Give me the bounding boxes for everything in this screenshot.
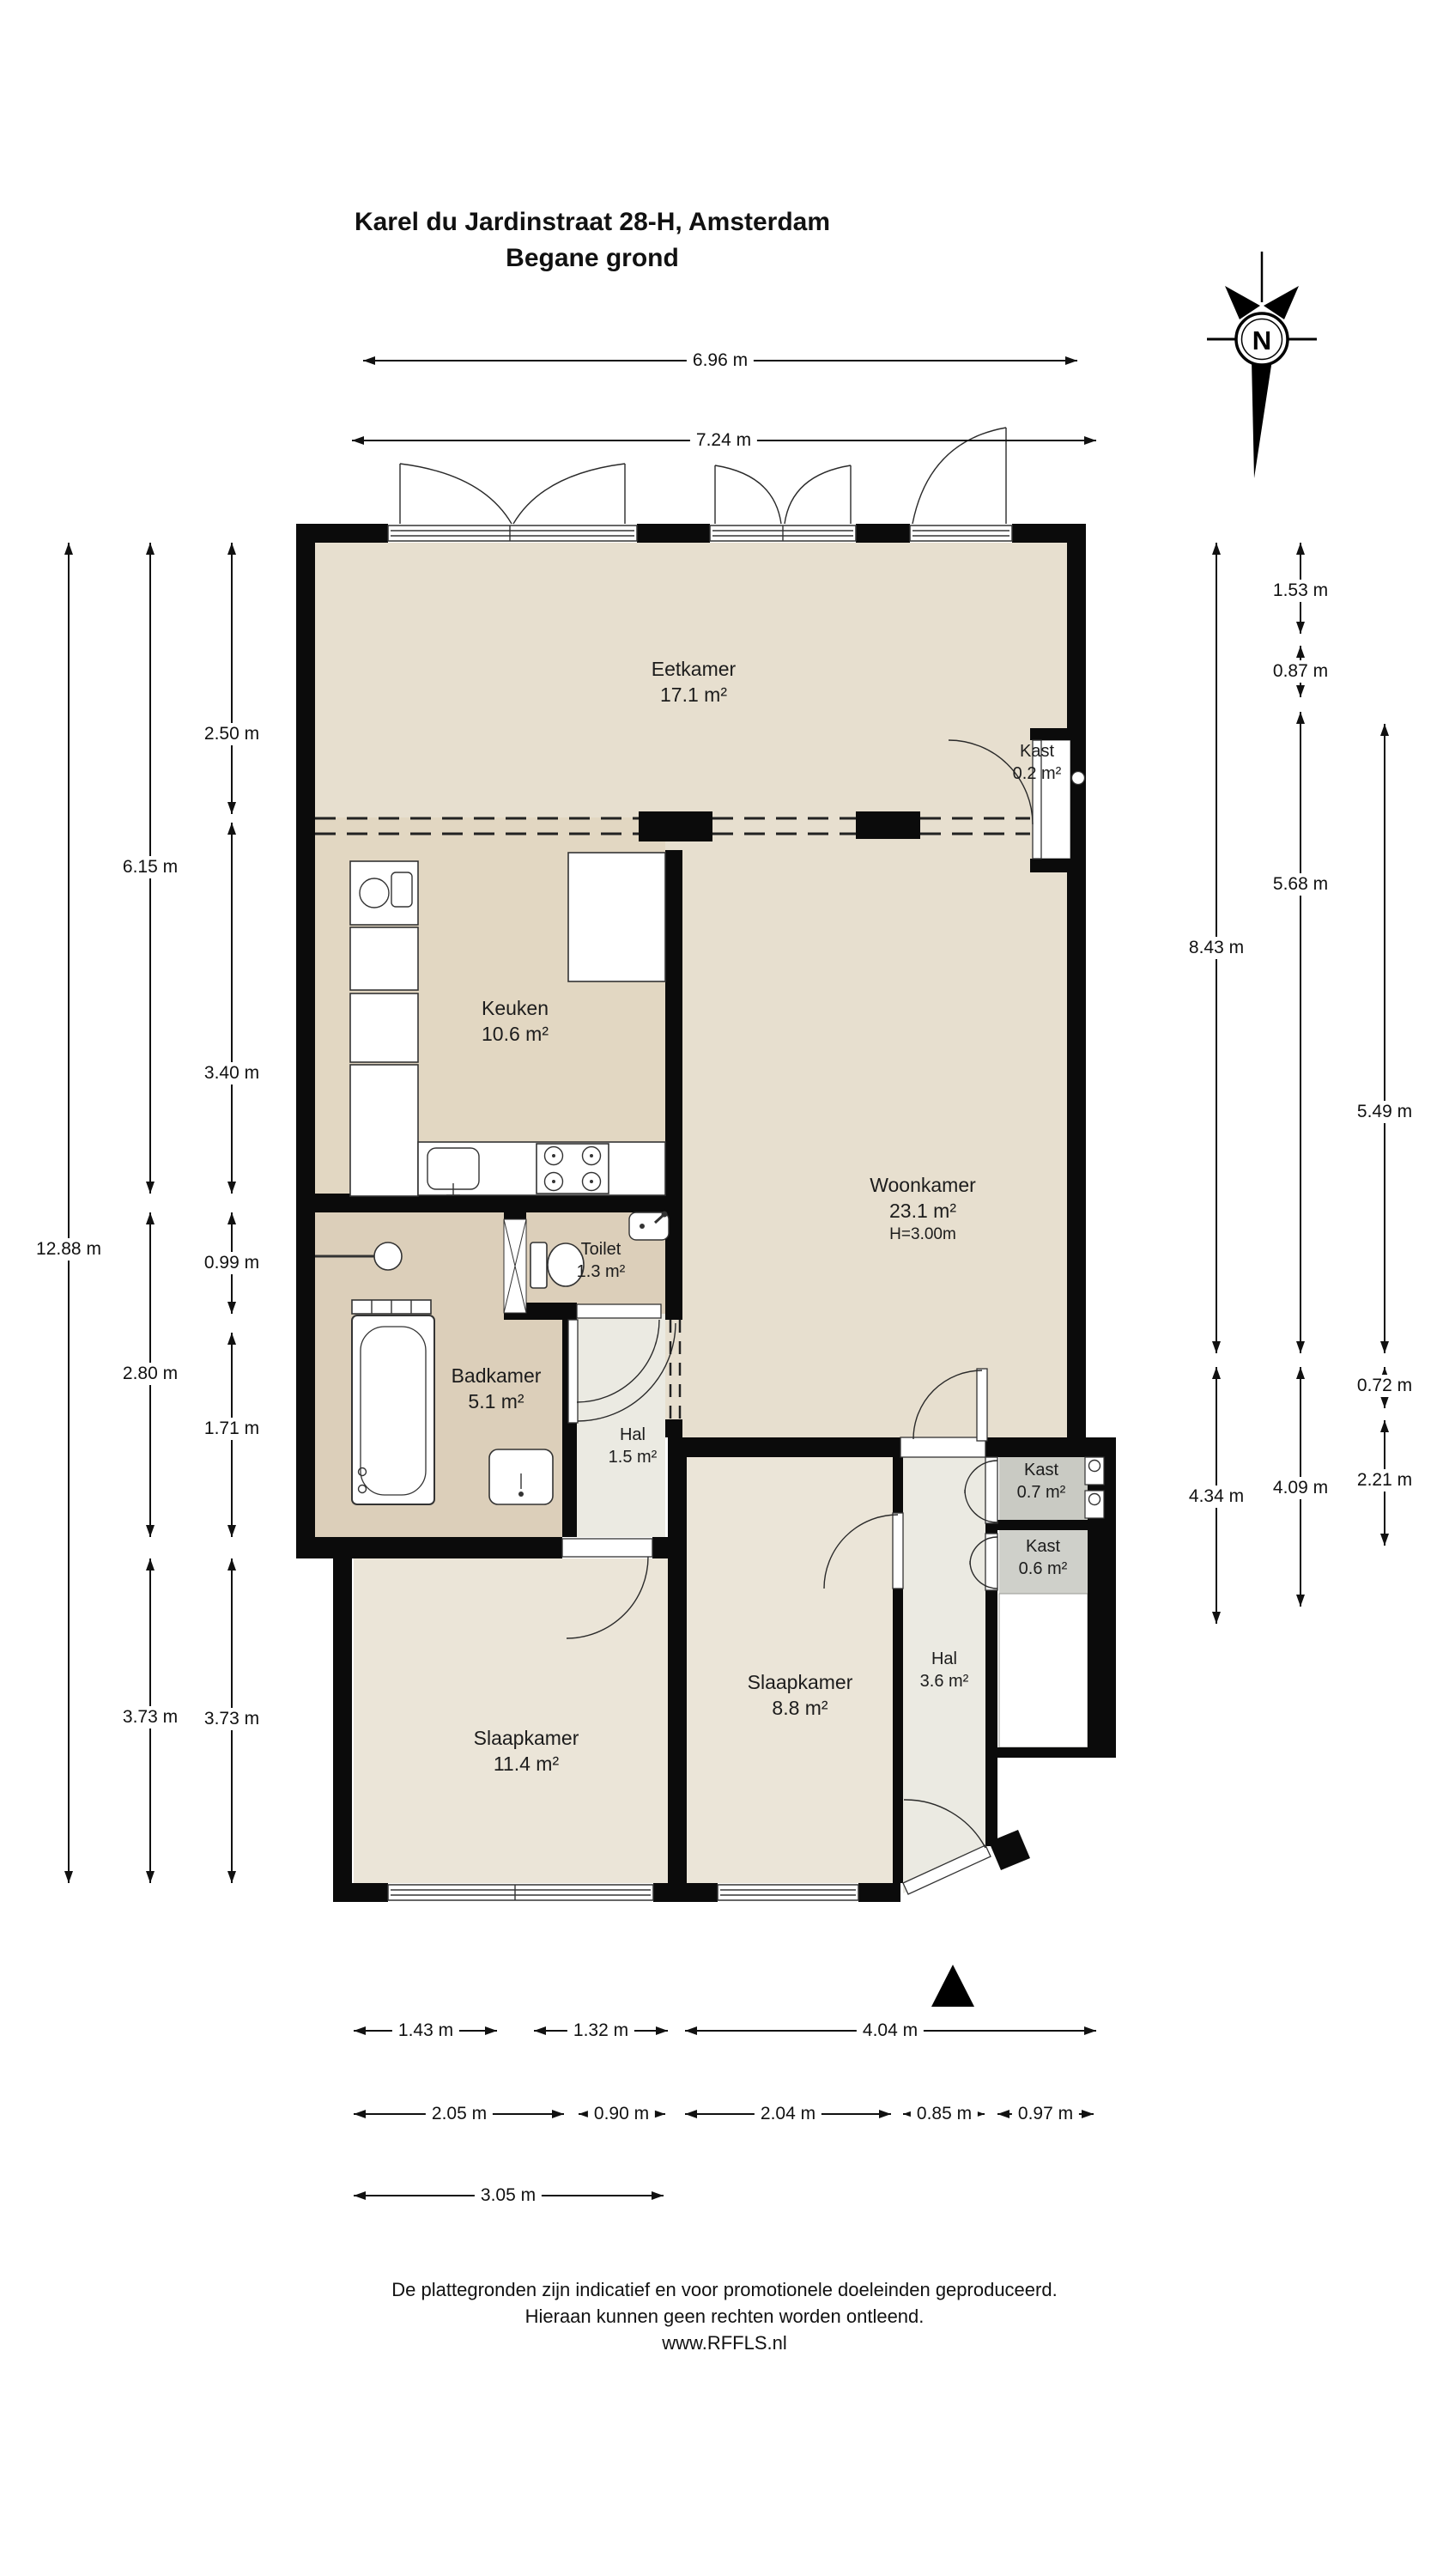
floorplan-page: Karel du Jardinstraat 28-H, Amsterdam Be… [0, 0, 1449, 2576]
dim-left-373a: 3.73 m [117, 1706, 184, 1728]
room-label-woonkamer: Woonkamer 23.1 m² H=3.00m [870, 1173, 976, 1245]
dim-bottom-204: 2.04 m [755, 2103, 822, 2125]
dim-left-099: 0.99 m [198, 1252, 265, 1274]
room-label-kast-06: Kast 0.6 m² [1019, 1535, 1068, 1580]
dim-bottom-143: 1.43 m [392, 2020, 459, 2042]
dim-right-568: 5.68 m [1267, 873, 1334, 896]
disclaimer-line1: De plattegronden zijn indicatief en voor… [391, 2277, 1057, 2304]
duct-shaft [504, 1219, 526, 1313]
room-label-keuken: Keuken 10.6 m² [482, 996, 549, 1048]
dim-right-153: 1.53 m [1267, 580, 1334, 602]
room-label-eetkamer: Eetkamer 17.1 m² [652, 657, 736, 708]
floorplan-drawing: N [0, 0, 1449, 2576]
room-label-hal-klein: Hal 1.5 m² [609, 1424, 658, 1468]
bathtub-icon [352, 1315, 434, 1504]
boiler-icon [1072, 772, 1085, 785]
dim-right-843: 8.43 m [1183, 937, 1250, 959]
dim-left-280: 2.80 m [117, 1363, 184, 1385]
washbasin-icon [489, 1449, 553, 1504]
dim-left-340: 3.40 m [198, 1062, 265, 1084]
dim-left-171: 1.71 m [198, 1418, 265, 1440]
disclaimer-url: www.RFFLS.nl [391, 2330, 1057, 2357]
dim-bottom-085: 0.85 m [911, 2103, 978, 2125]
washing-machine-icon [350, 861, 418, 925]
dim-left-1288: 12.88 m [30, 1238, 107, 1261]
room-label-hal-entree: Hal 3.6 m² [920, 1648, 969, 1692]
entrance-marker-icon [931, 1965, 974, 2007]
dim-right-409: 4.09 m [1267, 1477, 1334, 1499]
room-label-kast-07: Kast 0.7 m² [1017, 1459, 1066, 1504]
dim-right-087: 0.87 m [1267, 660, 1334, 683]
dim-bottom-132: 1.32 m [567, 2020, 634, 2042]
dim-right-221: 2.21 m [1351, 1469, 1418, 1492]
dim-bottom-090: 0.90 m [588, 2103, 655, 2125]
room-label-toilet: Toilet 1.3 m² [577, 1238, 626, 1283]
compass-north-letter: N [1252, 325, 1271, 355]
compass-icon: N [1207, 252, 1317, 478]
dim-bottom-305: 3.05 m [475, 2184, 542, 2207]
dim-bottom-205: 2.05 m [426, 2103, 493, 2125]
disclaimer: De plattegronden zijn indicatief en voor… [391, 2277, 1057, 2356]
dim-bottom-097: 0.97 m [1012, 2103, 1079, 2125]
dim-right-434: 4.34 m [1183, 1485, 1250, 1508]
corner-sink-icon [629, 1212, 669, 1241]
room-label-slaapkamer-klein: Slaapkamer 8.8 m² [748, 1670, 853, 1722]
dim-bottom-404: 4.04 m [857, 2020, 924, 2042]
dim-right-072: 0.72 m [1351, 1375, 1418, 1397]
room-label-badkamer: Badkamer 5.1 m² [452, 1364, 542, 1415]
dim-right-549: 5.49 m [1351, 1101, 1418, 1123]
dim-top-696: 6.96 m [687, 349, 754, 372]
dim-left-615: 6.15 m [117, 856, 184, 878]
dim-left-250: 2.50 m [198, 723, 265, 745]
dim-left-373b: 3.73 m [198, 1708, 265, 1730]
stove-icon [537, 1144, 609, 1194]
disclaimer-line2: Hieraan kunnen geen rechten worden ontle… [391, 2304, 1057, 2330]
dim-top-724: 7.24 m [690, 429, 757, 452]
room-label-kast-eetkamer: Kast 0.2 m² [1013, 740, 1062, 785]
room-label-slaapkamer-groot: Slaapkamer 11.4 m² [474, 1726, 579, 1777]
